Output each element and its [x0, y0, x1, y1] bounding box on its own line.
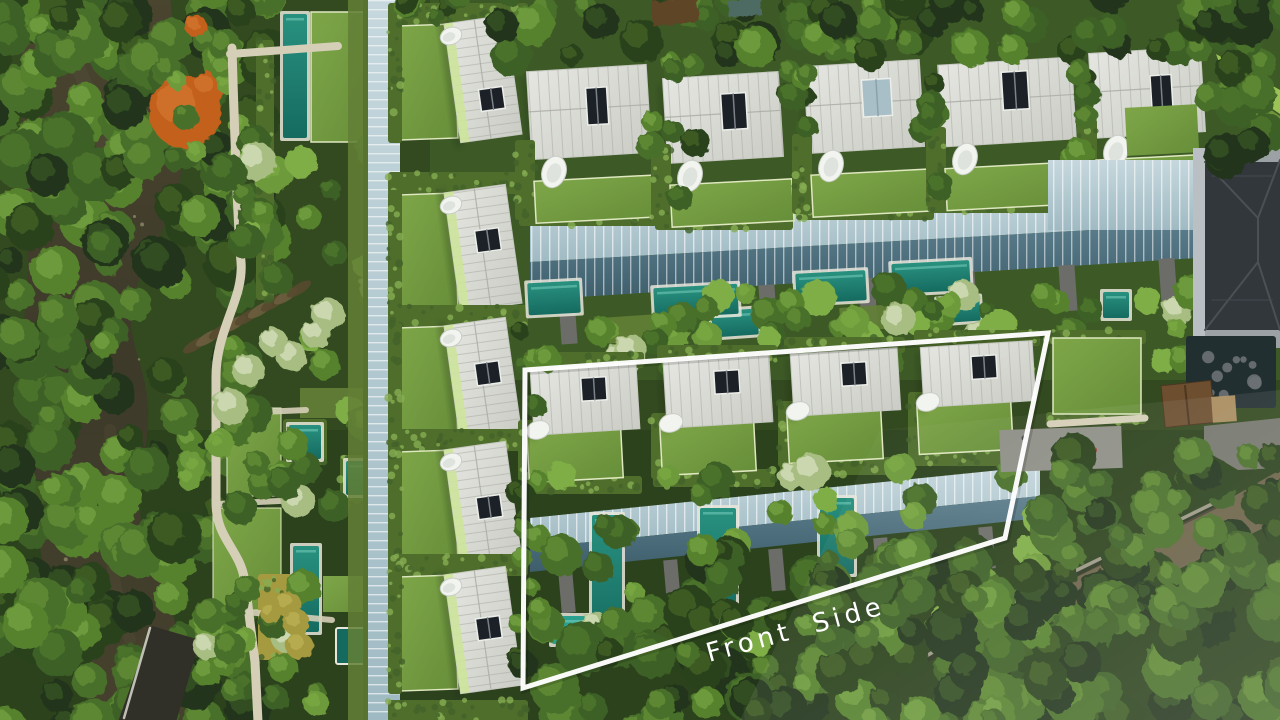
aerial-photo-svg: Front Side — [0, 0, 1280, 720]
aerial-photo: Front Side — [0, 0, 1280, 720]
villa-column — [348, 0, 530, 720]
